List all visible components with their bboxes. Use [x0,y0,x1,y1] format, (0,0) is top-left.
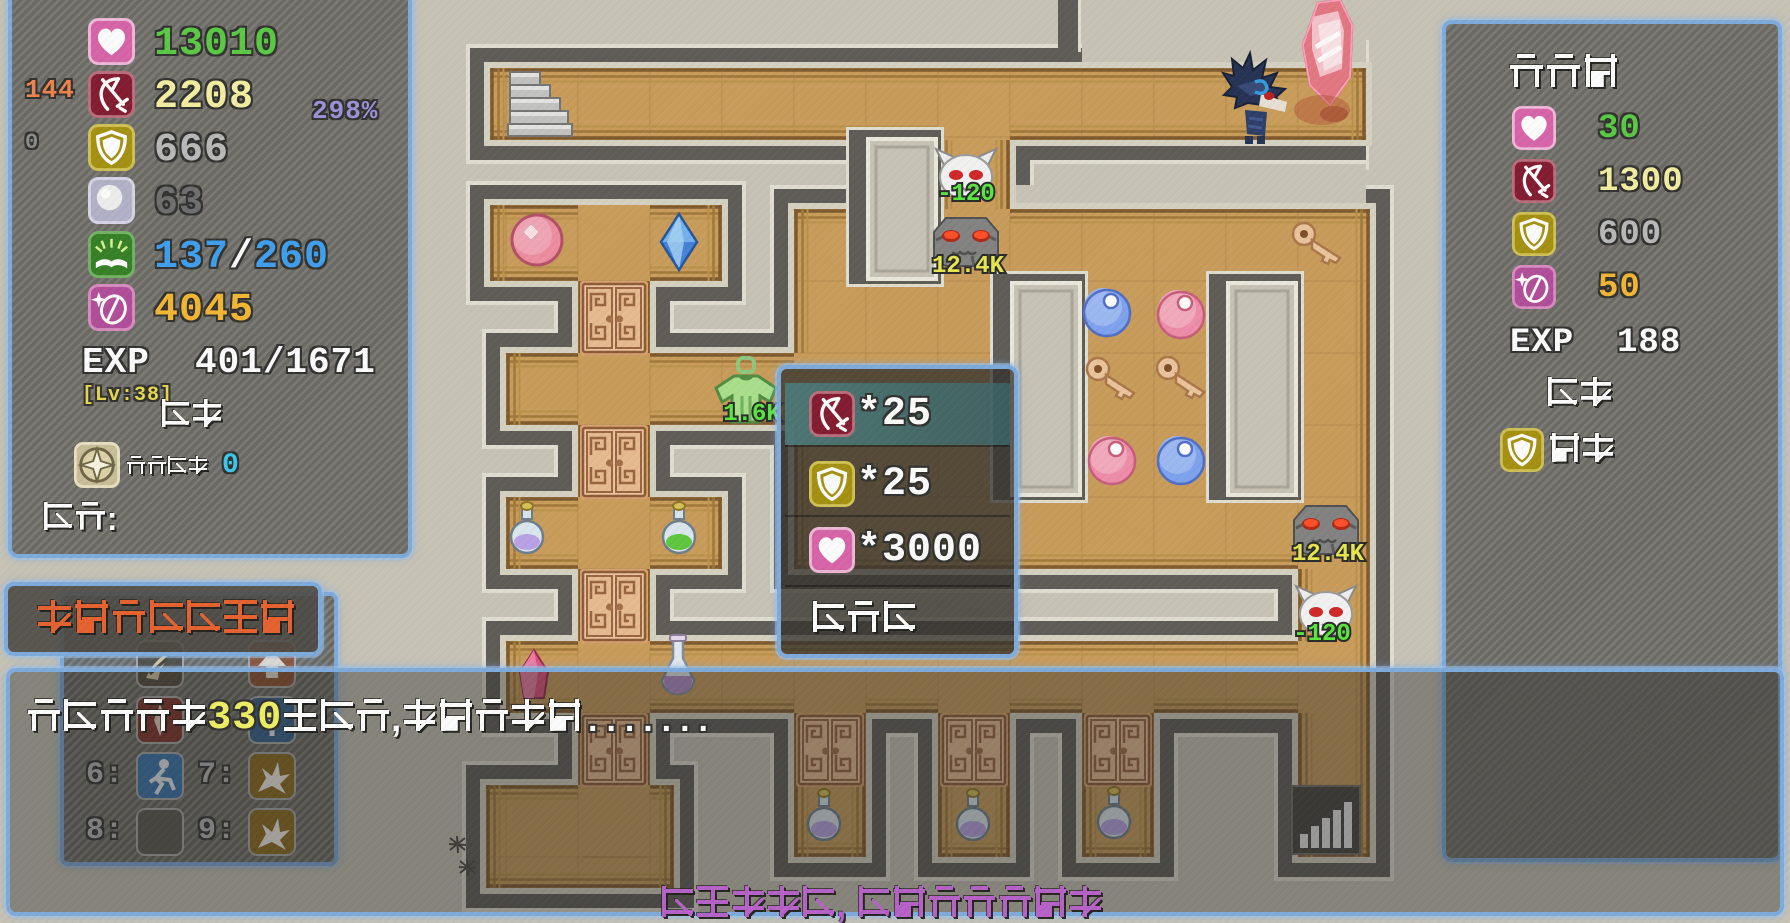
svg-text:12.4K: 12.4K [932,253,1005,280]
svg-text:12.4K: 12.4K [1292,541,1365,568]
svg-text:-120: -120 [937,181,995,208]
svg-text:1.6K: 1.6K [723,401,781,428]
svg-text:-120: -120 [1293,621,1351,648]
